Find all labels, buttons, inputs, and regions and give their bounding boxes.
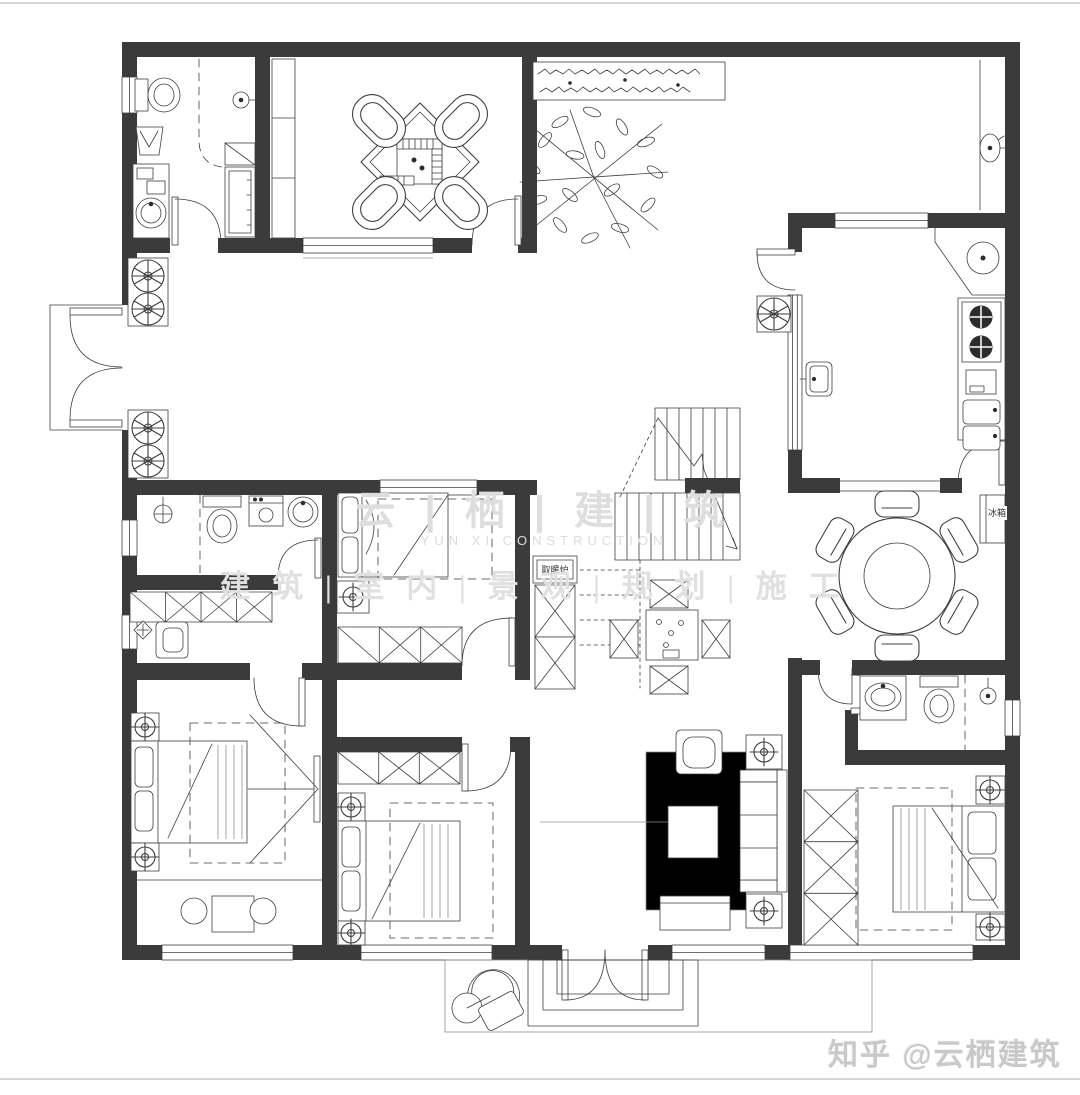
mahjong-room [272, 59, 495, 238]
shower-head-symbol [980, 134, 1006, 162]
floor-plan-page: 取暖炉 [0, 0, 1080, 1095]
wall-cabinet-symbol [225, 143, 255, 237]
nightstand-lamp [131, 713, 159, 741]
tree-symbol [520, 105, 668, 248]
door-swing [172, 197, 221, 245]
planter-pots-upper [128, 258, 168, 326]
kitchen-round-sink-symbol [967, 242, 999, 274]
bathroom-bottom-right [860, 675, 996, 750]
courtyard [520, 62, 725, 248]
hall [128, 258, 168, 478]
window [1005, 700, 1020, 736]
shower-head-symbol [233, 92, 255, 108]
bedroom-bottom-left [131, 713, 322, 932]
dining-table-symbol [839, 518, 955, 634]
ceiling-fan-symbol [757, 296, 791, 332]
bedroom-bottom-right [804, 776, 1005, 945]
shower-head-symbol [980, 678, 996, 704]
sofa-symbol [740, 770, 787, 892]
living-room [540, 580, 787, 930]
laundry-counter-symbol [133, 164, 169, 238]
round-sink-symbol [288, 497, 318, 527]
counter-appliance [966, 370, 996, 394]
nightstand-lamp [976, 913, 1005, 941]
prep-sink-symbol [800, 362, 832, 396]
stool-table-set [181, 896, 276, 932]
washing-machine-symbol [249, 496, 283, 526]
bathroom-top-left [133, 59, 255, 238]
side-table-lamp [746, 894, 782, 928]
bathroom-mid-left [154, 495, 318, 575]
window [162, 945, 293, 960]
bed-symbol [893, 806, 1005, 912]
window [303, 238, 433, 258]
bed-symbol [131, 741, 247, 843]
armchair-symbol [676, 730, 722, 774]
entrance-double-door [50, 305, 122, 430]
wardrobe-symbol [804, 790, 858, 945]
tv-cabinet-symbol [660, 896, 730, 930]
side-table-lamp [746, 735, 782, 769]
planter-pots-lower [128, 410, 168, 478]
wardrobe-symbol [338, 752, 460, 784]
window [672, 945, 765, 960]
window [790, 945, 973, 960]
main-entrance-double-door [562, 950, 648, 1000]
bed-symbol [338, 821, 460, 921]
tv-symbol [248, 715, 320, 863]
chair-symbol [156, 622, 188, 658]
gas-stove-symbol [962, 302, 1001, 362]
nightstand-lamp [131, 843, 159, 871]
nightstand-lamp [976, 776, 1005, 804]
shower-partition-dashed [199, 59, 222, 167]
porch-chair-table [452, 970, 525, 1032]
window [835, 213, 928, 228]
watermark-services: 建 筑 | 室 内 | 景 观 | 规 划 | 施 工 [219, 569, 846, 604]
entry-porch [445, 960, 872, 1032]
washroom-top-right [980, 60, 1006, 210]
door-swing [462, 618, 515, 666]
planter-bed [533, 62, 725, 100]
mop-sink-symbol [136, 127, 163, 155]
toilet-symbol [920, 676, 958, 723]
bedroom-bottom-middle [337, 752, 493, 947]
door-swing [462, 744, 511, 791]
window [361, 945, 492, 960]
dining-chair [875, 635, 919, 661]
door-swing [254, 678, 305, 726]
fridge-symbol: 冰箱 [980, 495, 1007, 543]
nightstand-lamp [337, 793, 365, 821]
window [122, 520, 137, 556]
door-swing [757, 249, 795, 290]
nightstand-lamp [337, 919, 365, 947]
vanity-sink-symbol [860, 676, 906, 720]
wardrobe-symbol [338, 627, 462, 663]
zhihu-credit: 知乎 @云栖建筑 [828, 1030, 1068, 1074]
toilet-symbol [135, 78, 180, 112]
floor-drain-symbol [154, 497, 172, 523]
watermark-cn: 云 | 栖 | 建 | 筑 [355, 489, 732, 533]
coffee-table-symbol [668, 806, 718, 858]
door-swing [818, 668, 852, 704]
watermark-en: YUN XI CONSTRUCTION [421, 533, 668, 548]
double-sink-symbol [963, 400, 1000, 450]
closet-strip [272, 59, 295, 238]
toilet-symbol [203, 496, 241, 543]
floor-plan-drawing: 取暖炉 [0, 0, 1080, 1095]
dining-chair [875, 491, 919, 517]
fridge-label: 冰箱 [988, 507, 1006, 518]
